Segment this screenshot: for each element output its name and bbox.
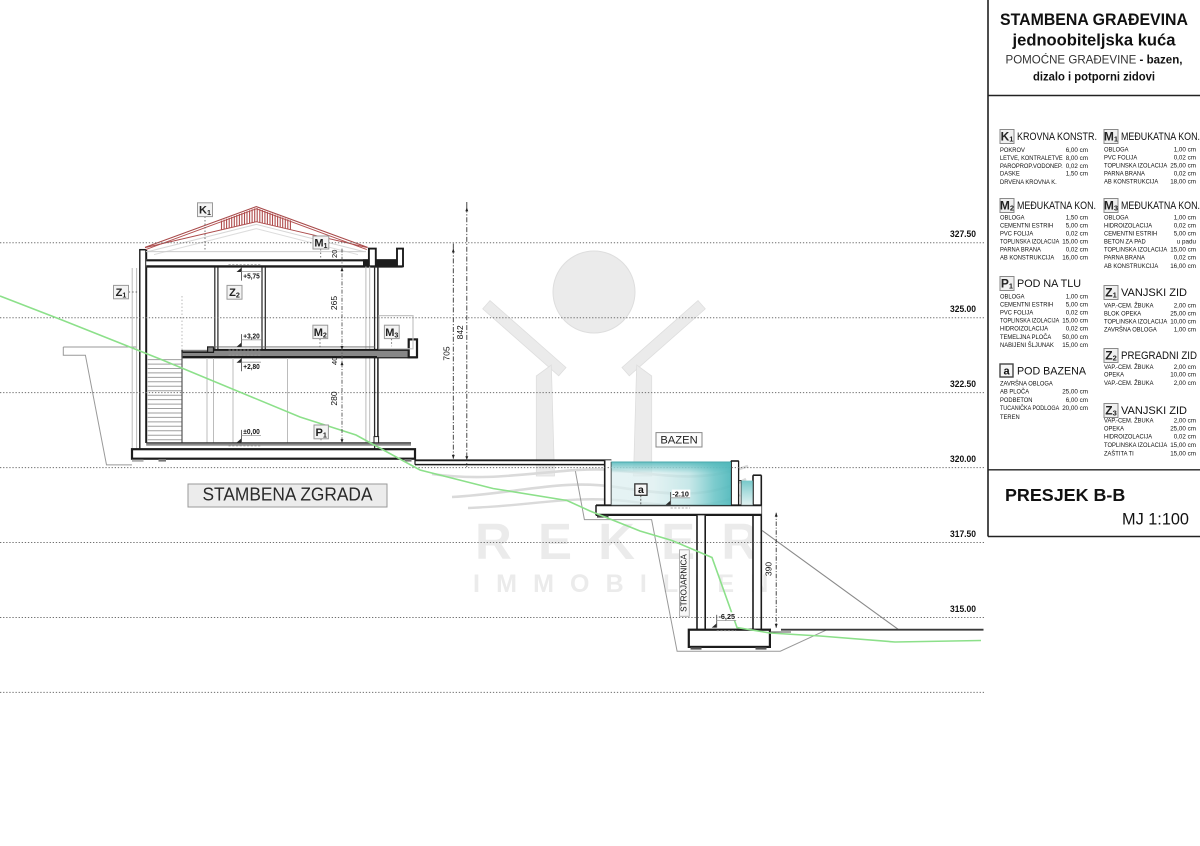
svg-text:OBLOGA: OBLOGA <box>1104 146 1129 153</box>
svg-text:0,02 cm: 0,02 cm <box>1066 325 1089 332</box>
svg-text:8,00 cm: 8,00 cm <box>1066 155 1089 162</box>
svg-text:327.50: 327.50 <box>950 229 976 240</box>
svg-text:317.50: 317.50 <box>950 529 976 540</box>
svg-text:VAP.-CEM. ŽBUKA: VAP.-CEM. ŽBUKA <box>1104 362 1154 371</box>
svg-text:PODBETON: PODBETON <box>1000 397 1033 404</box>
svg-text:PARNA BRANA: PARNA BRANA <box>1104 255 1145 262</box>
svg-text:DASKE: DASKE <box>1000 171 1020 178</box>
svg-text:AB PLOČA: AB PLOČA <box>1000 387 1030 396</box>
svg-text:jednoobiteljska kuća: jednoobiteljska kuća <box>1011 32 1176 50</box>
svg-text:6,00 cm: 6,00 cm <box>1066 147 1089 154</box>
svg-text:LETVE, KONTRALETVE: LETVE, KONTRALETVE <box>1000 155 1063 162</box>
svg-text:NABIJENI ŠLJUNAK: NABIJENI ŠLJUNAK <box>1000 340 1054 349</box>
svg-text:CEMENTNI ESTRIH: CEMENTNI ESTRIH <box>1000 301 1053 308</box>
svg-text:TEREN: TEREN <box>1000 414 1020 421</box>
svg-text:0,02 cm: 0,02 cm <box>1174 222 1197 229</box>
svg-text:VAP.-CEM. ŽBUKA: VAP.-CEM. ŽBUKA <box>1104 301 1154 310</box>
svg-text:ZAVRŠNA OBLOGA: ZAVRŠNA OBLOGA <box>1000 378 1053 387</box>
svg-text:1,50 cm: 1,50 cm <box>1066 214 1089 221</box>
svg-text:OPEKA: OPEKA <box>1104 426 1125 433</box>
svg-text:VANJSKI ZID: VANJSKI ZID <box>1121 405 1187 417</box>
svg-text:STAMBENA ZGRADA: STAMBENA ZGRADA <box>203 485 373 505</box>
svg-text:MEĐUKATNA KON.: MEĐUKATNA KON. <box>1121 131 1200 143</box>
svg-text:PVC FOLIJA: PVC FOLIJA <box>1000 309 1034 316</box>
svg-text:10,00 cm: 10,00 cm <box>1170 318 1196 325</box>
svg-text:50,00 cm: 50,00 cm <box>1062 334 1088 341</box>
svg-text:MEĐUKATNA KON.: MEĐUKATNA KON. <box>1121 200 1200 212</box>
svg-text:TEMELJNA PLOČA: TEMELJNA PLOČA <box>1000 332 1052 341</box>
svg-text:0,02 cm: 0,02 cm <box>1174 170 1197 177</box>
svg-text:-2.10: -2.10 <box>672 489 689 498</box>
svg-text:0,02 cm: 0,02 cm <box>1066 247 1089 254</box>
svg-text:AB KONSTRUKCIJA: AB KONSTRUKCIJA <box>1104 178 1159 185</box>
svg-text:2,00 cm: 2,00 cm <box>1174 418 1197 425</box>
svg-text:CEMENTNI ESTRIH: CEMENTNI ESTRIH <box>1000 222 1053 229</box>
svg-text:VAP.-CEM. ŽBUKA: VAP.-CEM. ŽBUKA <box>1104 416 1154 425</box>
svg-text:1,50 cm: 1,50 cm <box>1066 171 1089 178</box>
svg-text:VAP.-CEM. ŽBUKA: VAP.-CEM. ŽBUKA <box>1104 378 1154 387</box>
svg-text:u padu: u padu <box>1177 238 1197 245</box>
svg-text:10,00 cm: 10,00 cm <box>1170 372 1196 379</box>
svg-text:1,00 cm: 1,00 cm <box>1066 293 1089 300</box>
svg-text:6,00 cm: 6,00 cm <box>1066 397 1089 404</box>
svg-text:25,00 cm: 25,00 cm <box>1170 162 1196 169</box>
svg-text:PARNA BRANA: PARNA BRANA <box>1000 247 1041 254</box>
svg-text:18,00 cm: 18,00 cm <box>1170 178 1196 185</box>
svg-text:0,02 cm: 0,02 cm <box>1066 163 1089 170</box>
svg-text:PVC FOLIJA: PVC FOLIJA <box>1000 230 1034 237</box>
svg-text:PREGRADNI ZID: PREGRADNI ZID <box>1121 350 1197 362</box>
svg-text:TOPLINSKA IZOLACIJA: TOPLINSKA IZOLACIJA <box>1104 162 1168 169</box>
svg-text:5,00 cm: 5,00 cm <box>1066 301 1089 308</box>
svg-text:20,00 cm: 20,00 cm <box>1062 405 1088 412</box>
svg-text:265: 265 <box>329 296 339 310</box>
svg-text:5,00 cm: 5,00 cm <box>1066 222 1089 229</box>
svg-text:2,00 cm: 2,00 cm <box>1174 303 1197 310</box>
svg-text:R E K E R: R E K E R <box>475 513 764 570</box>
svg-text:MEĐUKATNA KON.: MEĐUKATNA KON. <box>1017 200 1096 212</box>
svg-text:842: 842 <box>455 325 465 339</box>
svg-text:OBLOGA: OBLOGA <box>1000 293 1025 300</box>
svg-text:VANJSKI ZID: VANJSKI ZID <box>1121 287 1187 299</box>
svg-text:15,00 cm: 15,00 cm <box>1062 238 1088 245</box>
svg-text:PARNA BRANA: PARNA BRANA <box>1104 170 1145 177</box>
svg-text:TOPLINSKA IZOLACIJA: TOPLINSKA IZOLACIJA <box>1000 317 1060 324</box>
svg-text:705: 705 <box>442 346 452 360</box>
svg-text:OBLOGA: OBLOGA <box>1000 214 1025 221</box>
svg-text:TOPLINSKA IZOLACIJA: TOPLINSKA IZOLACIJA <box>1104 442 1168 449</box>
svg-text:DRVENA KROVNA K.: DRVENA KROVNA K. <box>1000 179 1057 186</box>
svg-text:322.50: 322.50 <box>950 379 976 390</box>
svg-text:1,00 cm: 1,00 cm <box>1174 214 1197 221</box>
svg-text:40: 40 <box>330 357 339 365</box>
svg-text:BETON ZA PAD: BETON ZA PAD <box>1104 238 1146 245</box>
svg-text:a: a <box>1003 366 1010 378</box>
svg-text:15,00 cm: 15,00 cm <box>1170 450 1196 457</box>
svg-text:a: a <box>638 484 644 496</box>
svg-text:0,02 cm: 0,02 cm <box>1066 309 1089 316</box>
svg-text:2,00 cm: 2,00 cm <box>1174 380 1197 387</box>
svg-text:0,02 cm: 0,02 cm <box>1174 154 1197 161</box>
svg-text:OBLOGA: OBLOGA <box>1104 214 1129 221</box>
svg-text:2,00 cm: 2,00 cm <box>1174 364 1197 371</box>
svg-text:16,00 cm: 16,00 cm <box>1062 255 1088 262</box>
svg-text:KROVNA KONSTR.: KROVNA KONSTR. <box>1017 131 1097 143</box>
svg-text:25,00 cm: 25,00 cm <box>1170 311 1196 318</box>
svg-text:PRESJEK B-B: PRESJEK B-B <box>1005 485 1125 505</box>
svg-text:POKROV: POKROV <box>1000 147 1025 154</box>
svg-text:AB KONSTRUKCIJA: AB KONSTRUKCIJA <box>1104 263 1159 270</box>
svg-text:TUCANIČKA PODLOGA: TUCANIČKA PODLOGA <box>1000 403 1060 412</box>
svg-text:MJ 1:100: MJ 1:100 <box>1122 511 1189 529</box>
svg-text:OPEKA: OPEKA <box>1104 372 1125 379</box>
svg-text:HIDROIZOLACIJA: HIDROIZOLACIJA <box>1104 434 1153 441</box>
svg-text:BAZEN: BAZEN <box>660 435 697 447</box>
svg-text:±0,00: ±0,00 <box>243 427 259 436</box>
svg-text:-6,25: -6,25 <box>719 612 736 621</box>
svg-text:+5,75: +5,75 <box>243 272 260 281</box>
svg-text:BLOK OPEKA: BLOK OPEKA <box>1104 311 1142 318</box>
svg-text:PVC FOLIJA: PVC FOLIJA <box>1104 154 1138 161</box>
svg-text:1,00 cm: 1,00 cm <box>1174 146 1197 153</box>
svg-text:CEMENTNI ESTRIH: CEMENTNI ESTRIH <box>1104 230 1157 237</box>
svg-text:16,00 cm: 16,00 cm <box>1170 263 1196 270</box>
svg-text:390: 390 <box>764 562 774 576</box>
svg-text:ZAVRŠNA OBLOGA: ZAVRŠNA OBLOGA <box>1104 324 1157 333</box>
svg-text:0,02 cm: 0,02 cm <box>1174 434 1197 441</box>
svg-text:POMOĆNE GRAĐEVINE - bazen,: POMOĆNE GRAĐEVINE - bazen, <box>1006 52 1183 67</box>
svg-text:TOPLINSKA IZOLACIJA: TOPLINSKA IZOLACIJA <box>1104 246 1168 253</box>
svg-text:280: 280 <box>329 391 339 405</box>
svg-text:15,00 cm: 15,00 cm <box>1062 317 1088 324</box>
svg-text:PAROPROP.VODONEP.: PAROPROP.VODONEP. <box>1000 163 1063 170</box>
svg-text:POD NA TLU: POD NA TLU <box>1017 278 1081 290</box>
svg-text:0,02 cm: 0,02 cm <box>1174 255 1197 262</box>
svg-text:20: 20 <box>330 250 339 258</box>
svg-text:+2,80: +2,80 <box>243 362 260 371</box>
svg-text:0,02 cm: 0,02 cm <box>1066 230 1089 237</box>
svg-text:15,00 cm: 15,00 cm <box>1170 442 1196 449</box>
svg-text:25,00 cm: 25,00 cm <box>1062 389 1088 396</box>
svg-text:POD BAZENA: POD BAZENA <box>1017 366 1087 378</box>
svg-text:HIDROIZOLACIJA: HIDROIZOLACIJA <box>1000 325 1049 332</box>
svg-text:STROJARNICA: STROJARNICA <box>680 554 689 612</box>
svg-text:I M M O B I L I E N: I M M O B I L I E N <box>473 570 773 598</box>
svg-text:AB KONSTRUKCIJA: AB KONSTRUKCIJA <box>1000 255 1055 262</box>
svg-text:STAMBENA GRAĐEVINA: STAMBENA GRAĐEVINA <box>1000 10 1188 29</box>
svg-text:ZAŠTITA TI: ZAŠTITA TI <box>1104 448 1134 457</box>
svg-text:315.00: 315.00 <box>950 604 976 615</box>
svg-text:320.00: 320.00 <box>950 454 976 465</box>
svg-text:dizalo i potporni zidovi: dizalo i potporni zidovi <box>1033 70 1155 84</box>
svg-text:15,00 cm: 15,00 cm <box>1170 246 1196 253</box>
svg-text:+3,20: +3,20 <box>243 331 260 340</box>
svg-text:325.00: 325.00 <box>950 304 976 315</box>
svg-text:TOPLINSKA IZOLACIJA: TOPLINSKA IZOLACIJA <box>1104 318 1168 325</box>
svg-text:25,00 cm: 25,00 cm <box>1170 426 1196 433</box>
svg-text:1,00 cm: 1,00 cm <box>1174 326 1197 333</box>
svg-text:15,00 cm: 15,00 cm <box>1062 342 1088 349</box>
svg-text:HIDROIZOLACIJA: HIDROIZOLACIJA <box>1104 222 1153 229</box>
svg-text:5,00 cm: 5,00 cm <box>1174 230 1197 237</box>
svg-text:TOPLINSKA IZOLACIJA: TOPLINSKA IZOLACIJA <box>1000 238 1060 245</box>
